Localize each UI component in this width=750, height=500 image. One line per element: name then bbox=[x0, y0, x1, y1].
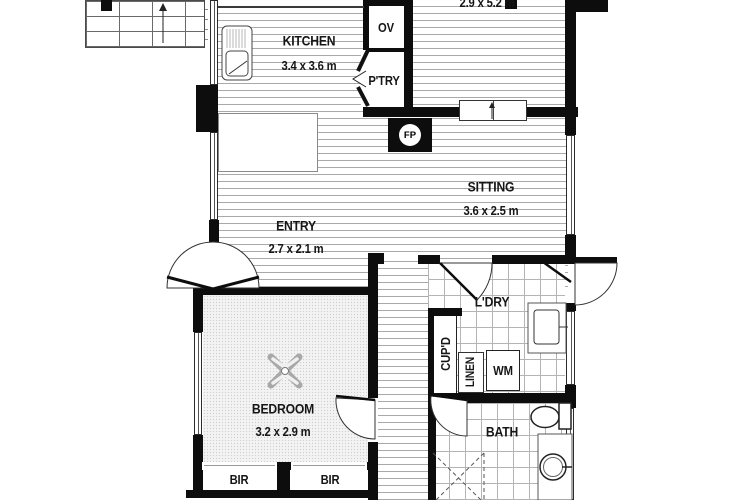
bath-door-arc bbox=[431, 395, 467, 436]
entry-door-arc bbox=[167, 242, 259, 289]
fireplace-label: FP bbox=[404, 130, 416, 141]
laundry-trough-icon bbox=[528, 303, 568, 353]
robe-left-label: BIR bbox=[230, 473, 249, 487]
pantry-door-icon bbox=[353, 50, 368, 106]
room-label-laundry: L'DRY bbox=[475, 295, 510, 310]
room-dims-entry: 2.7 x 2.1 m bbox=[269, 242, 324, 256]
linen-label: LINEN bbox=[465, 357, 477, 387]
room-label-bath: BATH bbox=[486, 425, 518, 440]
washing-machine-label: WM bbox=[493, 364, 513, 378]
robe-right-label: BIR bbox=[321, 473, 340, 487]
room-dims-sitting: 3.6 x 2.5 m bbox=[464, 204, 519, 218]
floor-plan: FP KITCHEN 3.4 x 3.6 m 2.9 x 5.2 m OV P'… bbox=[0, 0, 750, 500]
vanity-basin-icon bbox=[538, 434, 572, 500]
pantry-label: P'TRY bbox=[368, 74, 399, 88]
oven-label: OV bbox=[378, 21, 394, 35]
servery-arrow-icon bbox=[489, 102, 495, 119]
room-label-kitchen: KITCHEN bbox=[283, 34, 336, 49]
room-dims-kitchen: 3.4 x 3.6 m bbox=[282, 59, 337, 73]
cupboard-label: CUP'D bbox=[439, 337, 453, 371]
room-dims-upper: 2.9 x 5.2 m bbox=[460, 0, 515, 10]
external-door-arc bbox=[543, 262, 617, 305]
ceiling-fan-icon bbox=[271, 357, 299, 385]
room-label-bedroom: BEDROOM bbox=[252, 402, 314, 417]
kitchen-sink-icon bbox=[222, 26, 252, 80]
room-dims-bedroom: 3.2 x 2.9 m bbox=[256, 425, 311, 439]
fireplace-marker: FP bbox=[399, 124, 421, 146]
room-label-entry: ENTRY bbox=[276, 219, 316, 234]
room-label-sitting: SITTING bbox=[468, 180, 515, 195]
toilet-icon bbox=[531, 403, 571, 429]
shower-icon bbox=[433, 453, 484, 500]
bedroom-door-arc bbox=[336, 396, 375, 439]
stairs-arrow-icon bbox=[159, 3, 167, 43]
